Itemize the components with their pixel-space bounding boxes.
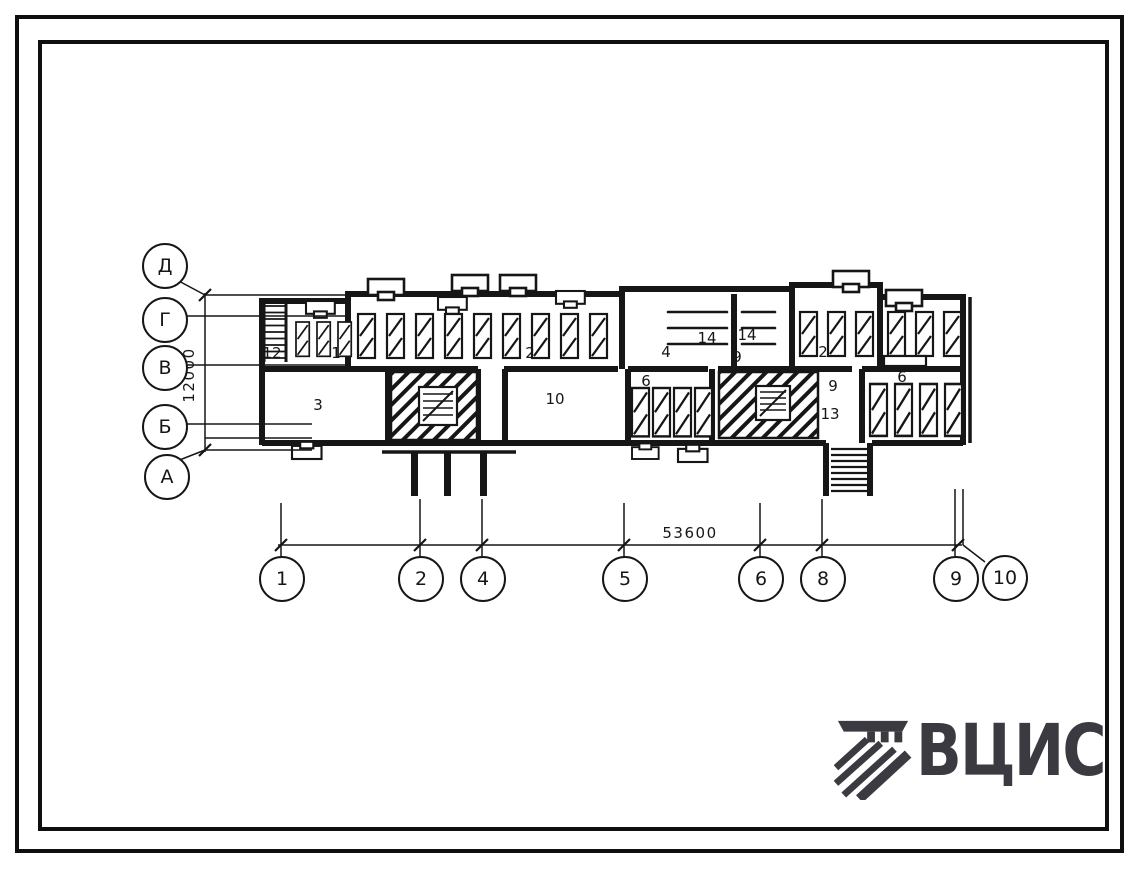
col-axis-marker-4: 4: [460, 556, 506, 602]
col-axis-marker-9: 9: [933, 556, 979, 602]
col-axis-marker-10: 10: [982, 555, 1028, 601]
room-label: 14: [697, 329, 716, 347]
row-axis-marker-d: Д: [142, 243, 188, 289]
row-axis-marker-b: Б: [142, 404, 188, 450]
room-label: 6: [897, 368, 907, 386]
col-axis-marker-5: 5: [602, 556, 648, 602]
col-axis-marker-1: 1: [259, 556, 305, 602]
room-label: 13: [820, 405, 839, 423]
vcis-logo-text: ВЦИС: [916, 718, 1105, 786]
porch-columns: [411, 452, 487, 496]
room-label: 14: [737, 326, 756, 344]
external-stair-ladder: [831, 449, 867, 491]
room-label: 10: [545, 390, 564, 408]
col-axis-marker-8: 8: [800, 556, 846, 602]
rack-lines: [668, 312, 775, 344]
room-label: 9: [732, 348, 742, 366]
horizontal-dimension: 53600: [650, 524, 730, 542]
drawing-sheet: 12 1 3 2 4 10 6 14 14 9 2 9 13 6 Д Г В Б…: [0, 0, 1139, 869]
row-axis-marker-v: В: [142, 345, 188, 391]
room-label: 9: [828, 377, 838, 395]
vcis-logo: ВЦИС: [834, 712, 1117, 800]
room-label: 12: [262, 344, 281, 362]
room-label: 2: [525, 344, 535, 362]
room-label: 6: [641, 372, 651, 390]
room-label: 3: [313, 396, 323, 414]
col-axis-marker-6: 6: [738, 556, 784, 602]
room-label: 4: [661, 343, 671, 361]
row-axis-marker-a: А: [144, 454, 190, 500]
room-label: 1: [331, 344, 341, 362]
dimension-ticks: [199, 289, 964, 551]
row-axis-marker-g: Г: [142, 297, 188, 343]
room-label: 2: [818, 343, 828, 361]
vcis-logo-icon: [834, 712, 912, 800]
col-axis-marker-2: 2: [398, 556, 444, 602]
